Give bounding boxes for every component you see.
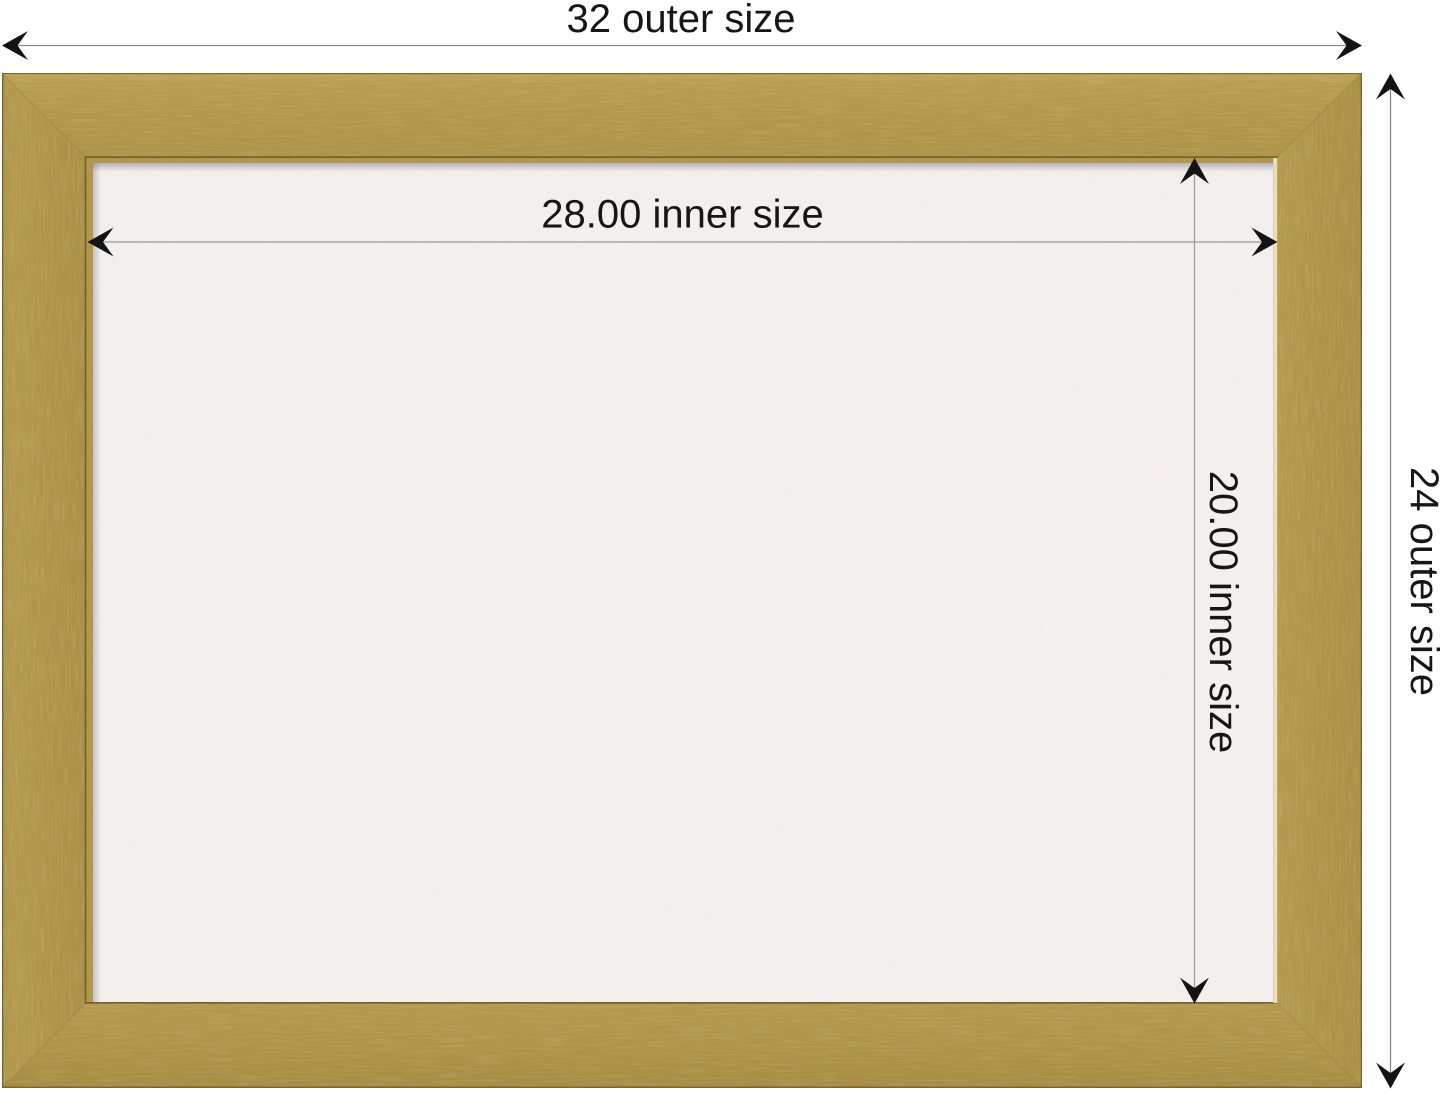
svg-text:32 outer size: 32 outer size (566, 0, 795, 41)
svg-text:24 outer size: 24 outer size (1402, 467, 1445, 696)
svg-text:20.00 inner size: 20.00 inner size (1201, 471, 1245, 753)
svg-text:28.00 inner size: 28.00 inner size (541, 193, 823, 237)
